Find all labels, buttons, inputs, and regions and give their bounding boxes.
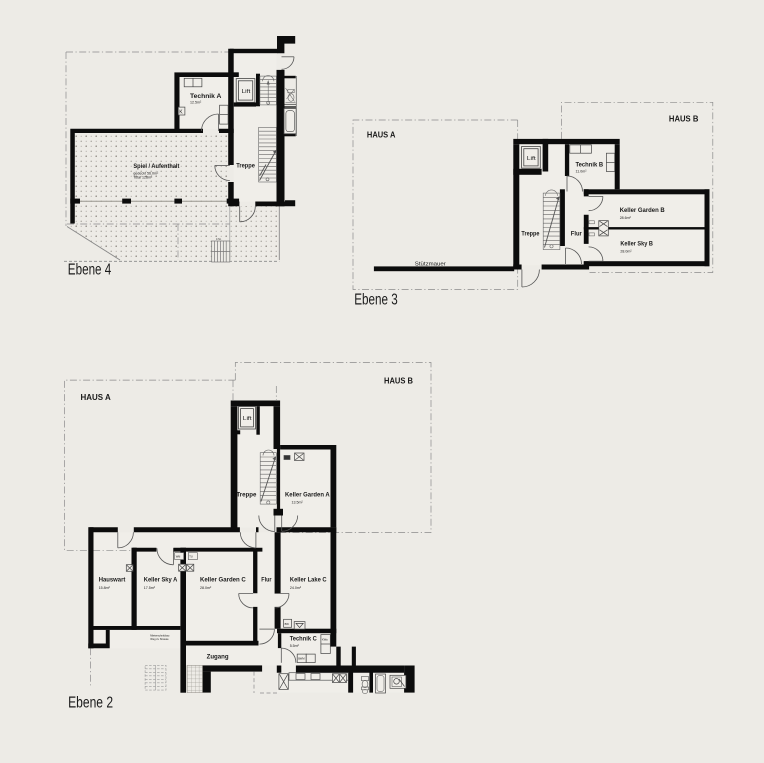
svg-text:Ebene 4: Ebene 4 [68, 262, 112, 279]
svg-text:BW: BW [285, 622, 290, 626]
svg-text:BWM: BWM [298, 657, 304, 661]
svg-text:Lift: Lift [243, 416, 252, 422]
svg-text:11.0m²: 11.0m² [576, 170, 588, 174]
svg-text:28.6m²: 28.6m² [620, 216, 632, 220]
svg-text:HAUS B: HAUS B [384, 376, 413, 386]
svg-text:4 St.: 4 St. [216, 237, 222, 241]
svg-text:13.5m²: 13.5m² [292, 501, 304, 505]
svg-text:17.5m²: 17.5m² [144, 586, 156, 590]
svg-text:Technik C: Technik C [290, 636, 317, 643]
svg-text:28.0m²: 28.0m² [200, 586, 212, 590]
svg-text:5.5m²: 5.5m² [290, 644, 300, 648]
svg-text:Ebene 2: Ebene 2 [68, 695, 113, 712]
svg-text:Keller Garden A: Keller Garden A [285, 492, 330, 499]
svg-text:WM: WM [176, 555, 181, 559]
svg-text:Treppe: Treppe [236, 163, 255, 170]
svg-text:Technik A: Technik A [190, 93, 222, 100]
svg-text:Flur: Flur [261, 577, 272, 584]
svg-text:Lift: Lift [242, 89, 251, 95]
svg-text:HAUS A: HAUS A [81, 392, 111, 402]
svg-text:Technik B: Technik B [576, 162, 604, 169]
svg-text:28.0m²: 28.0m² [620, 250, 632, 254]
svg-text:Stützmauer: Stützmauer [415, 261, 446, 267]
svg-text:Treppe: Treppe [236, 492, 256, 499]
svg-text:Total 128m²: Total 128m² [133, 176, 153, 180]
svg-text:Spiel / Aufenthalt: Spiel / Aufenthalt [133, 163, 180, 170]
svg-text:Hauswart: Hauswart [99, 577, 126, 584]
svg-text:Mieterschnittbau: Mieterschnittbau [150, 634, 170, 638]
svg-text:TU: TU [189, 555, 193, 559]
svg-text:Keller Sky A: Keller Sky A [144, 577, 178, 584]
svg-text:15.8m²: 15.8m² [99, 586, 111, 590]
svg-text:KWa: KWa [322, 638, 328, 642]
svg-text:24.0m²: 24.0m² [290, 586, 302, 590]
svg-text:Keller Garden C: Keller Garden C [200, 577, 246, 584]
svg-text:Keller Garden B: Keller Garden B [620, 207, 665, 214]
svg-text:Zugang: Zugang [207, 654, 229, 661]
svg-text:Keller Sky B: Keller Sky B [620, 241, 653, 248]
svg-text:HAUS B: HAUS B [669, 114, 699, 124]
svg-text:Keller Lake C: Keller Lake C [290, 577, 327, 584]
svg-text:Flur: Flur [571, 231, 582, 238]
svg-text:Treppe: Treppe [521, 231, 539, 238]
svg-text:Ebene 3: Ebene 3 [354, 292, 398, 309]
svg-text:HAUS A: HAUS A [367, 130, 396, 140]
svg-text:Lift: Lift [527, 156, 536, 162]
svg-text:Weg zu Strasse: Weg zu Strasse [150, 637, 169, 641]
svg-text:12.5m²: 12.5m² [190, 101, 202, 105]
